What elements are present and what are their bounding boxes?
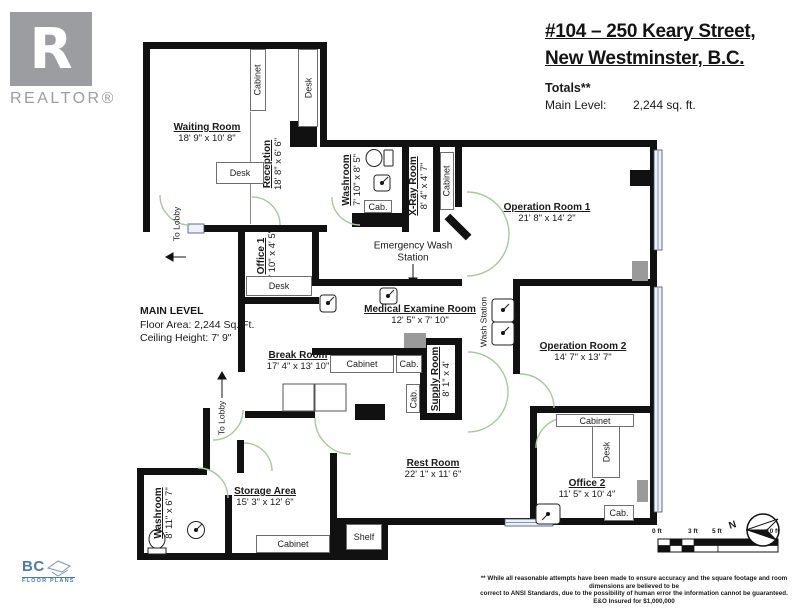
realtor-logo: R REALTOR® [10, 12, 116, 108]
address-line-1: #104 – 250 Keary Street, [545, 18, 791, 45]
title-block: #104 – 250 Keary Street, New Westminster… [545, 18, 791, 112]
cab-office-2: Cab. [604, 505, 634, 521]
desk-reception: Desk [298, 49, 318, 127]
room-label-xray-room: X-Ray Room8' 4" x 4' 7" [408, 156, 430, 215]
level-info-block: MAIN LEVEL Floor Area: 2,244 Sq. Ft. Cei… [140, 305, 254, 346]
realtor-logo-icon: R [10, 12, 92, 86]
room-label-washroom-top: Washroom7' 10" x 8' 5" [341, 154, 363, 206]
room-label-operation-room-1: Operation Room 121' 8" x 14' 2" [504, 202, 591, 224]
bc-logo-text: BC [22, 558, 45, 575]
room-label-break-room: Break Room17' 4" x 13' 10" [267, 350, 330, 372]
emergency-wash-sink-icon [380, 288, 397, 304]
scale-tick-0ft: 0 ft [652, 528, 662, 535]
main-level-value: 2,244 sq. ft. [633, 98, 696, 112]
sink-icon [188, 522, 205, 539]
wash-station-label: Wash Station [478, 297, 490, 347]
room-label-rest-room: Rest Room22' 1" x 11' 6" [405, 458, 462, 480]
room-label-office-2: Office 211' 5" x 10' 4" [559, 478, 616, 500]
desk-waiting-room: Desk [216, 162, 264, 184]
scale-tick-3ft: 3 ft [688, 528, 698, 535]
room-label-waiting-room: Waiting Room18' 9" x 10' 8" [174, 122, 241, 144]
disclaimer-line-1: ** While all reasonable attempts have be… [478, 575, 790, 590]
shelf: Shelf [346, 524, 382, 550]
break-room-tables [283, 384, 346, 411]
level-info-title: MAIN LEVEL [140, 305, 254, 319]
totals-label: Totals** [545, 81, 791, 95]
scale-tick-5ft: 5 ft [712, 528, 722, 535]
to-lobby-label-1: To Lobby [171, 207, 183, 242]
to-lobby-label-2: To Lobby [216, 401, 228, 436]
main-level-label: Main Level: [545, 98, 633, 112]
realtor-logo-label: REALTOR® [10, 90, 116, 108]
level-info-floor-area: Floor Area: 2,244 Sq. Ft. [140, 319, 254, 333]
main-level-total: Main Level: 2,244 sq. ft. [545, 98, 791, 112]
cab-break-room: Cab. [396, 355, 422, 373]
cab-washroom-top: Cab. [364, 200, 392, 213]
bc-floor-plans-logo: BC FLOOR PLANS [22, 558, 75, 584]
cabinet-break-room: Cabinet [330, 355, 394, 373]
desk-office-1: Desk [246, 276, 312, 296]
sink-icon [536, 504, 560, 524]
bc-logo-subtext: FLOOR PLANS [22, 577, 75, 584]
disclaimer: ** While all reasonable attempts have be… [478, 575, 790, 605]
room-label-medical-examine-room: Medical Examine Room12' 5" x 7' 10" [364, 304, 476, 326]
disclaimer-line-2: correct to ANSI Standards, due to the po… [478, 590, 790, 605]
cabinet-storage: Cabinet [256, 535, 330, 553]
sink-icon [320, 295, 336, 312]
cabinet-xray: Cabinet [440, 152, 454, 210]
cabinet-reception-top: Cabinet [250, 49, 266, 111]
floor-plan-page: R REALTOR® #104 – 250 Keary Street, New … [0, 0, 792, 612]
room-label-operation-room-2: Operation Room 214' 7" x 13' 7" [540, 341, 627, 363]
wash-station-sinks-icon [492, 299, 514, 345]
sink-icon [374, 175, 390, 191]
toilet-icon [366, 150, 393, 167]
room-label-office-1: Office 16' 10" x 4' 5" [256, 230, 278, 282]
level-info-ceiling-height: Ceiling Height: 7' 9" [140, 332, 254, 346]
desk-office-2: Desk [592, 426, 620, 478]
emergency-wash-station-label: Emergency Wash Station [374, 241, 453, 264]
address-line-2: New Westminster, B.C. [545, 45, 791, 72]
room-label-washroom-bottom: Washroom8' 11" x 6' 7" [153, 487, 175, 538]
room-label-storage-area: Storage Area15' 3" x 12' 6" [234, 486, 296, 508]
room-label-reception: Reception18' 8" x 6' 6" [262, 138, 284, 190]
room-label-supply-room: Supply Room8' 1" x 4' [430, 347, 452, 411]
scale-tick-10ft: 10 ft [766, 528, 779, 535]
cab-supply-room: Cab. [406, 384, 420, 413]
